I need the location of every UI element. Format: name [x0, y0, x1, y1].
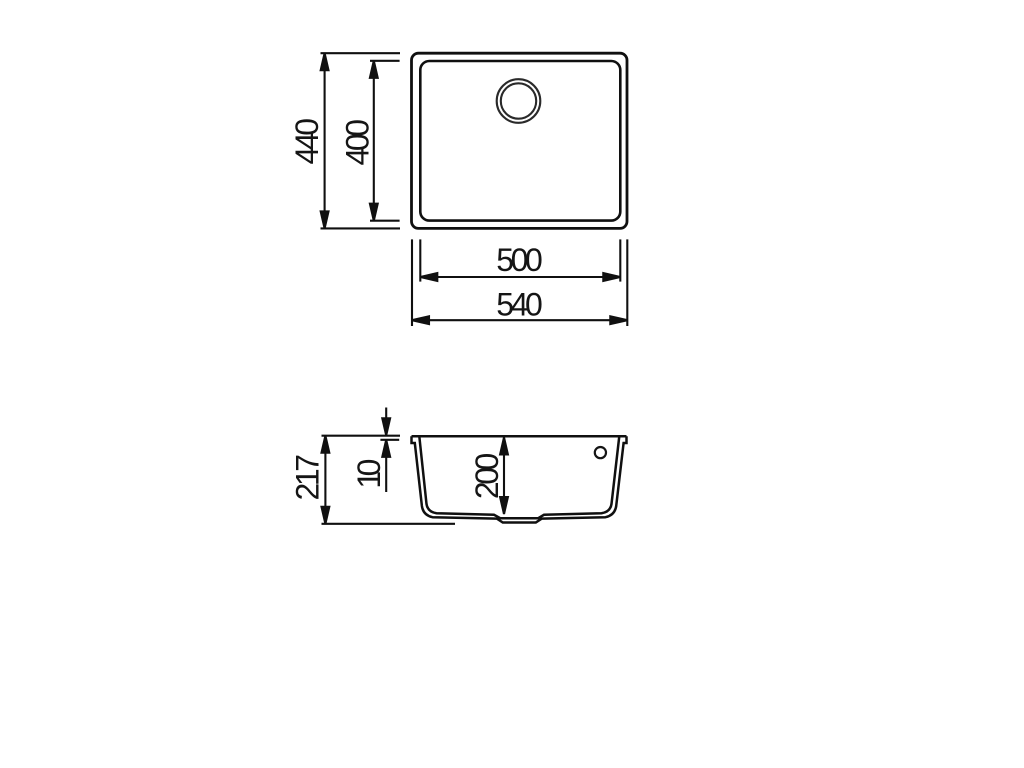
- svg-text:217: 217: [290, 454, 326, 501]
- svg-text:200: 200: [469, 453, 505, 500]
- svg-text:440: 440: [289, 118, 325, 165]
- svg-text:540: 540: [496, 287, 543, 323]
- svg-text:400: 400: [340, 119, 376, 166]
- svg-text:500: 500: [496, 242, 543, 278]
- svg-text:10: 10: [351, 459, 387, 489]
